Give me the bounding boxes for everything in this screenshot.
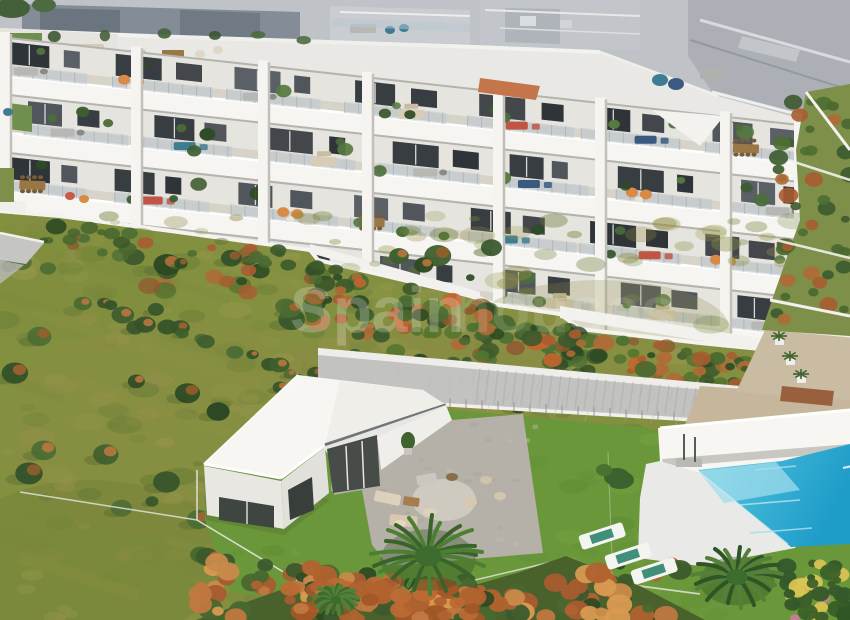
svg-text:houses: houses — [452, 274, 676, 346]
svg-text:Spain: Spain — [290, 274, 464, 346]
